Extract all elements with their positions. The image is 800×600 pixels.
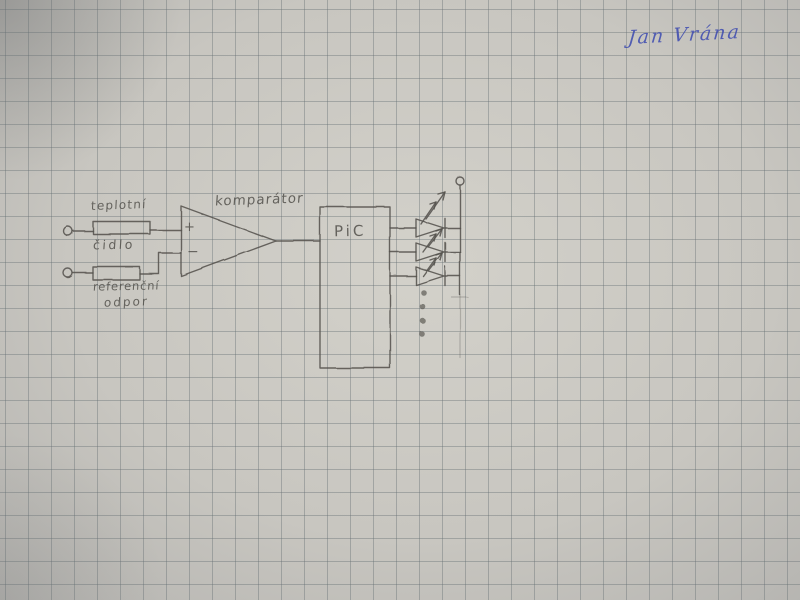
supply-terminal [456,177,464,185]
reference-resistor-label-line1: referenční [93,280,160,293]
input-terminal-top [64,227,73,236]
wire [140,253,181,274]
resistor-symbol-temperature-sensor [93,222,150,235]
comparator-label: komparátor [215,192,304,209]
led-symbol-3 [416,253,460,286]
input-terminal-bottom [64,269,73,278]
temperature-sensor-label-line1: teplotní [91,198,147,212]
led-symbol-2 [416,229,460,262]
temperature-sensor-label-line2: čidlo [93,239,136,252]
reference-resistor-label-line2: odpor [104,295,149,309]
more-outputs-dots [420,291,427,337]
comparator-minus-input-label: − [187,245,199,259]
squared-paper-background: teplotní čidlo referenční odpor komparát… [0,0,800,600]
pic-label: PiC [334,224,367,240]
comparator-plus-input-label: + [184,221,195,234]
led-emission-arrow [421,202,436,224]
comparator-triangle-symbol [181,206,276,276]
